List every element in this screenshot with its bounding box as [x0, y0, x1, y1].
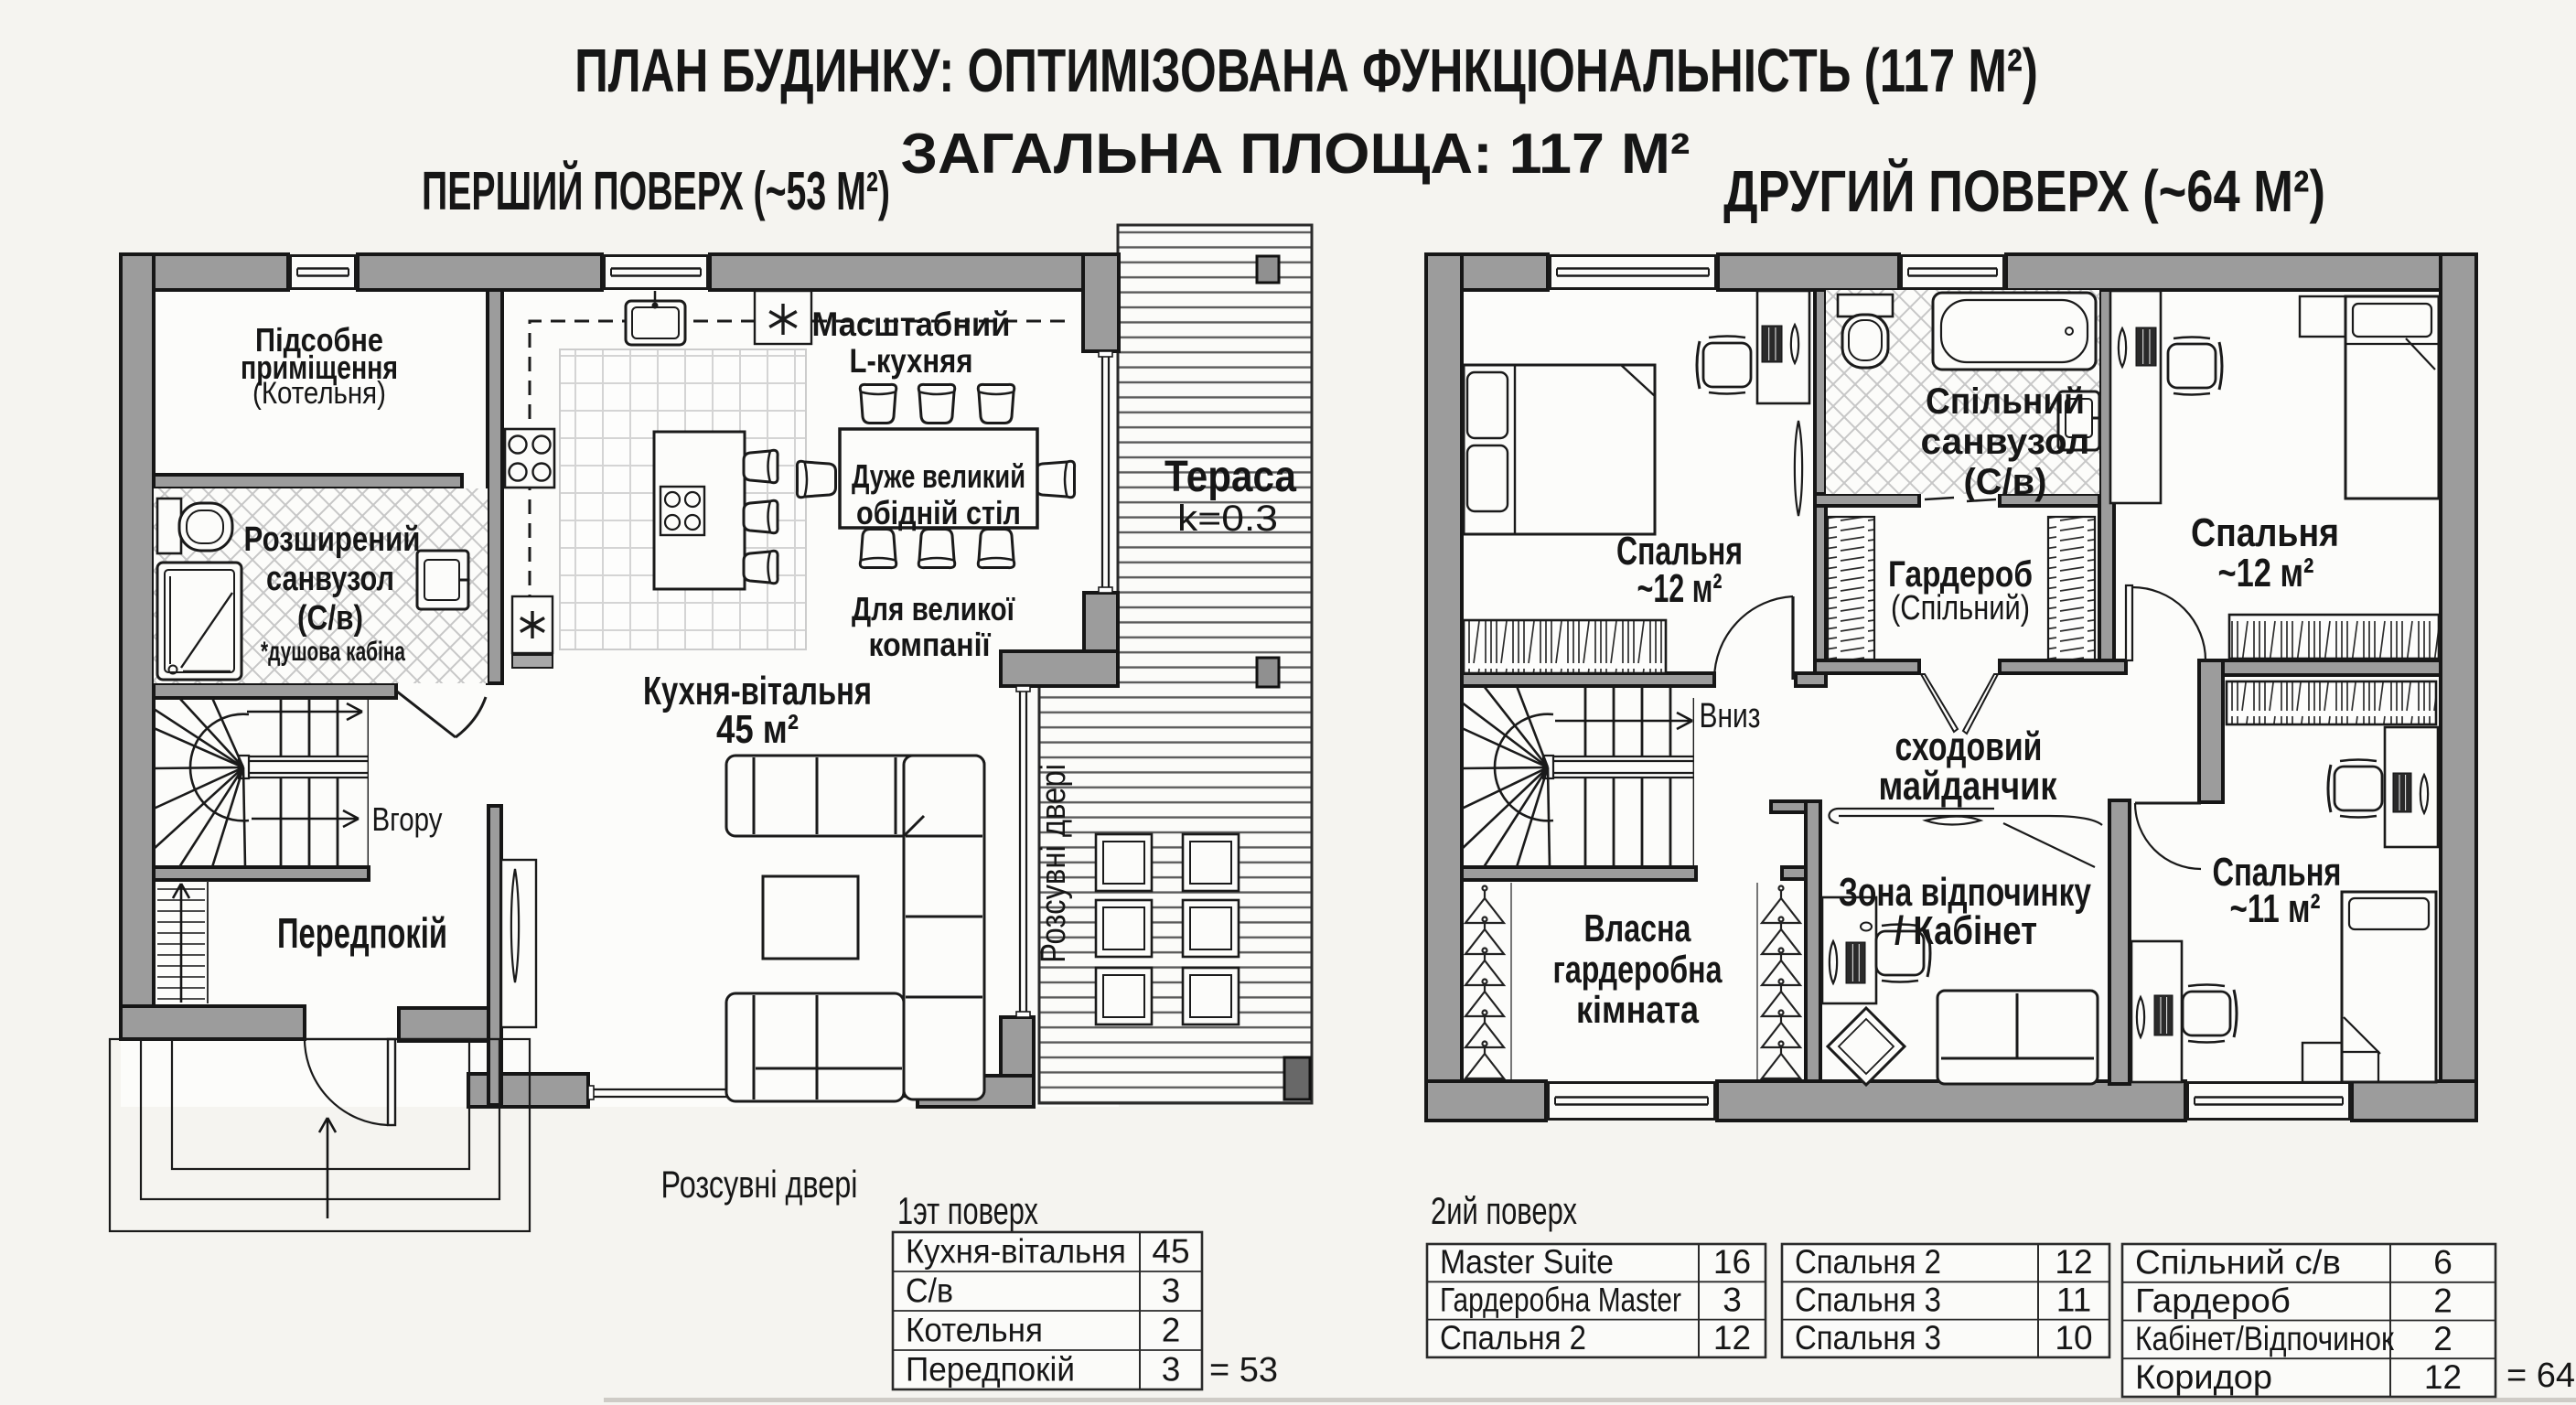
svg-text:обідній стіл: обідній стіл [856, 496, 1021, 532]
svg-text:гардеробна: гардеробна [1553, 948, 1723, 991]
svg-text:Тераса: Тераса [1165, 451, 1297, 500]
svg-text:Спальня 3: Спальня 3 [1795, 1282, 1941, 1319]
svg-text:16: 16 [1713, 1243, 1751, 1281]
svg-text:ПЛАН БУДИНКУ: ОПТИМІЗОВАНА ФУН: ПЛАН БУДИНКУ: ОПТИМІЗОВАНА ФУНКЦІОНАЛЬНІ… [574, 36, 2038, 104]
svg-text:10: 10 [2055, 1319, 2092, 1357]
svg-text:компанії: компанії [869, 627, 992, 663]
svg-text:Вниз: Вниз [1700, 697, 1761, 735]
svg-text:ДРУГИЙ ПОВЕРХ (~64 М²): ДРУГИЙ ПОВЕРХ (~64 М²) [1723, 157, 2325, 224]
svg-text:Розсувні двері: Розсувні двері [1034, 764, 1073, 963]
svg-text:Масштабний: Масштабний [812, 306, 1011, 343]
svg-text:Гардеробна Master: Гардеробна Master [1440, 1282, 1681, 1320]
svg-text:санвузол: санвузол [266, 560, 394, 598]
svg-text:Спальня: Спальня [2191, 509, 2339, 555]
svg-text:12: 12 [2055, 1243, 2092, 1281]
svg-text:(С/в): (С/в) [1964, 462, 2047, 502]
svg-text:2: 2 [2433, 1282, 2453, 1319]
svg-text:k=0.3: k=0.3 [1177, 498, 1278, 538]
svg-text:3: 3 [1162, 1272, 1181, 1310]
svg-text:Передпокій: Передпокій [906, 1350, 1075, 1389]
svg-text:Гардероб: Гардероб [2135, 1282, 2291, 1320]
svg-text:6: 6 [2433, 1244, 2453, 1282]
svg-text:Кабінет/Відпочинок: Кабінет/Відпочинок [2135, 1321, 2395, 1358]
svg-text:Спільний: Спільний [1926, 381, 2085, 423]
svg-text:/ Кабінет: / Кабінет [1894, 907, 2037, 953]
svg-text:Кухня-вітальня: Кухня-вітальня [906, 1232, 1126, 1270]
svg-text:Розширений: Розширений [244, 520, 421, 559]
svg-text:2ий поверх: 2ий поверх [1431, 1189, 1577, 1232]
svg-text:= 53: = 53 [1209, 1351, 1278, 1389]
svg-text:45 м²: 45 м² [716, 706, 799, 752]
svg-text:(Котельня): (Котельня) [252, 375, 386, 410]
svg-text:Котельня: Котельня [906, 1311, 1043, 1349]
svg-text:1эт поверх: 1эт поверх [897, 1189, 1038, 1232]
svg-text:ЗАГАЛЬНА ПЛОЩА: 117 М²: ЗАГАЛЬНА ПЛОЩА: 117 М² [901, 123, 1690, 185]
svg-text:кімната: кімната [1576, 989, 1699, 1031]
svg-text:(Спільний): (Спільний) [1891, 589, 2030, 627]
svg-text:Спільний с/в: Спільний с/в [2135, 1243, 2341, 1281]
svg-text:~11 м²: ~11 м² [2230, 887, 2321, 932]
svg-text:= 64: = 64 [2506, 1357, 2575, 1395]
svg-text:11: 11 [2056, 1282, 2091, 1319]
svg-text:3: 3 [1162, 1351, 1181, 1389]
svg-text:2: 2 [1162, 1312, 1181, 1349]
svg-text:С/в: С/в [906, 1271, 953, 1310]
svg-text:45: 45 [1152, 1233, 1189, 1271]
svg-text:Власна: Власна [1584, 906, 1692, 949]
svg-text:Спальня 2: Спальня 2 [1440, 1319, 1586, 1357]
svg-text:майданчик: майданчик [1879, 764, 2058, 809]
svg-text:~12 м²: ~12 м² [1637, 567, 1723, 612]
svg-text:Спальня 3: Спальня 3 [1795, 1319, 1941, 1357]
svg-text:Спальня 2: Спальня 2 [1795, 1243, 1941, 1281]
svg-text:L-кухняя: L-кухняя [850, 343, 973, 381]
svg-text:Передпокій: Передпокій [277, 911, 447, 958]
svg-text:12: 12 [1713, 1319, 1751, 1357]
svg-text:Master Suite: Master Suite [1440, 1243, 1614, 1282]
svg-text:Для великої: Для великої [852, 590, 1015, 627]
svg-text:Гардероб: Гардероб [1888, 553, 2033, 594]
svg-text:3: 3 [1723, 1282, 1742, 1319]
svg-text:(С/в): (С/в) [297, 598, 363, 637]
svg-text:Дуже великий: Дуже великий [852, 457, 1025, 495]
svg-text:санвузол: санвузол [1921, 421, 2090, 462]
svg-text:12: 12 [2424, 1358, 2462, 1396]
svg-text:Вгору: Вгору [371, 800, 442, 837]
svg-text:Коридор: Коридор [2135, 1357, 2272, 1395]
svg-text:Розсувні двері: Розсувні двері [661, 1163, 858, 1206]
svg-text:~12 м²: ~12 м² [2218, 551, 2314, 595]
svg-text:ПЕРШИЙ ПОВЕРХ (~53 М²): ПЕРШИЙ ПОВЕРХ (~53 М²) [422, 160, 890, 221]
svg-text:2: 2 [2433, 1320, 2453, 1357]
svg-text:*душова кабіна: *душова кабіна [261, 637, 405, 667]
